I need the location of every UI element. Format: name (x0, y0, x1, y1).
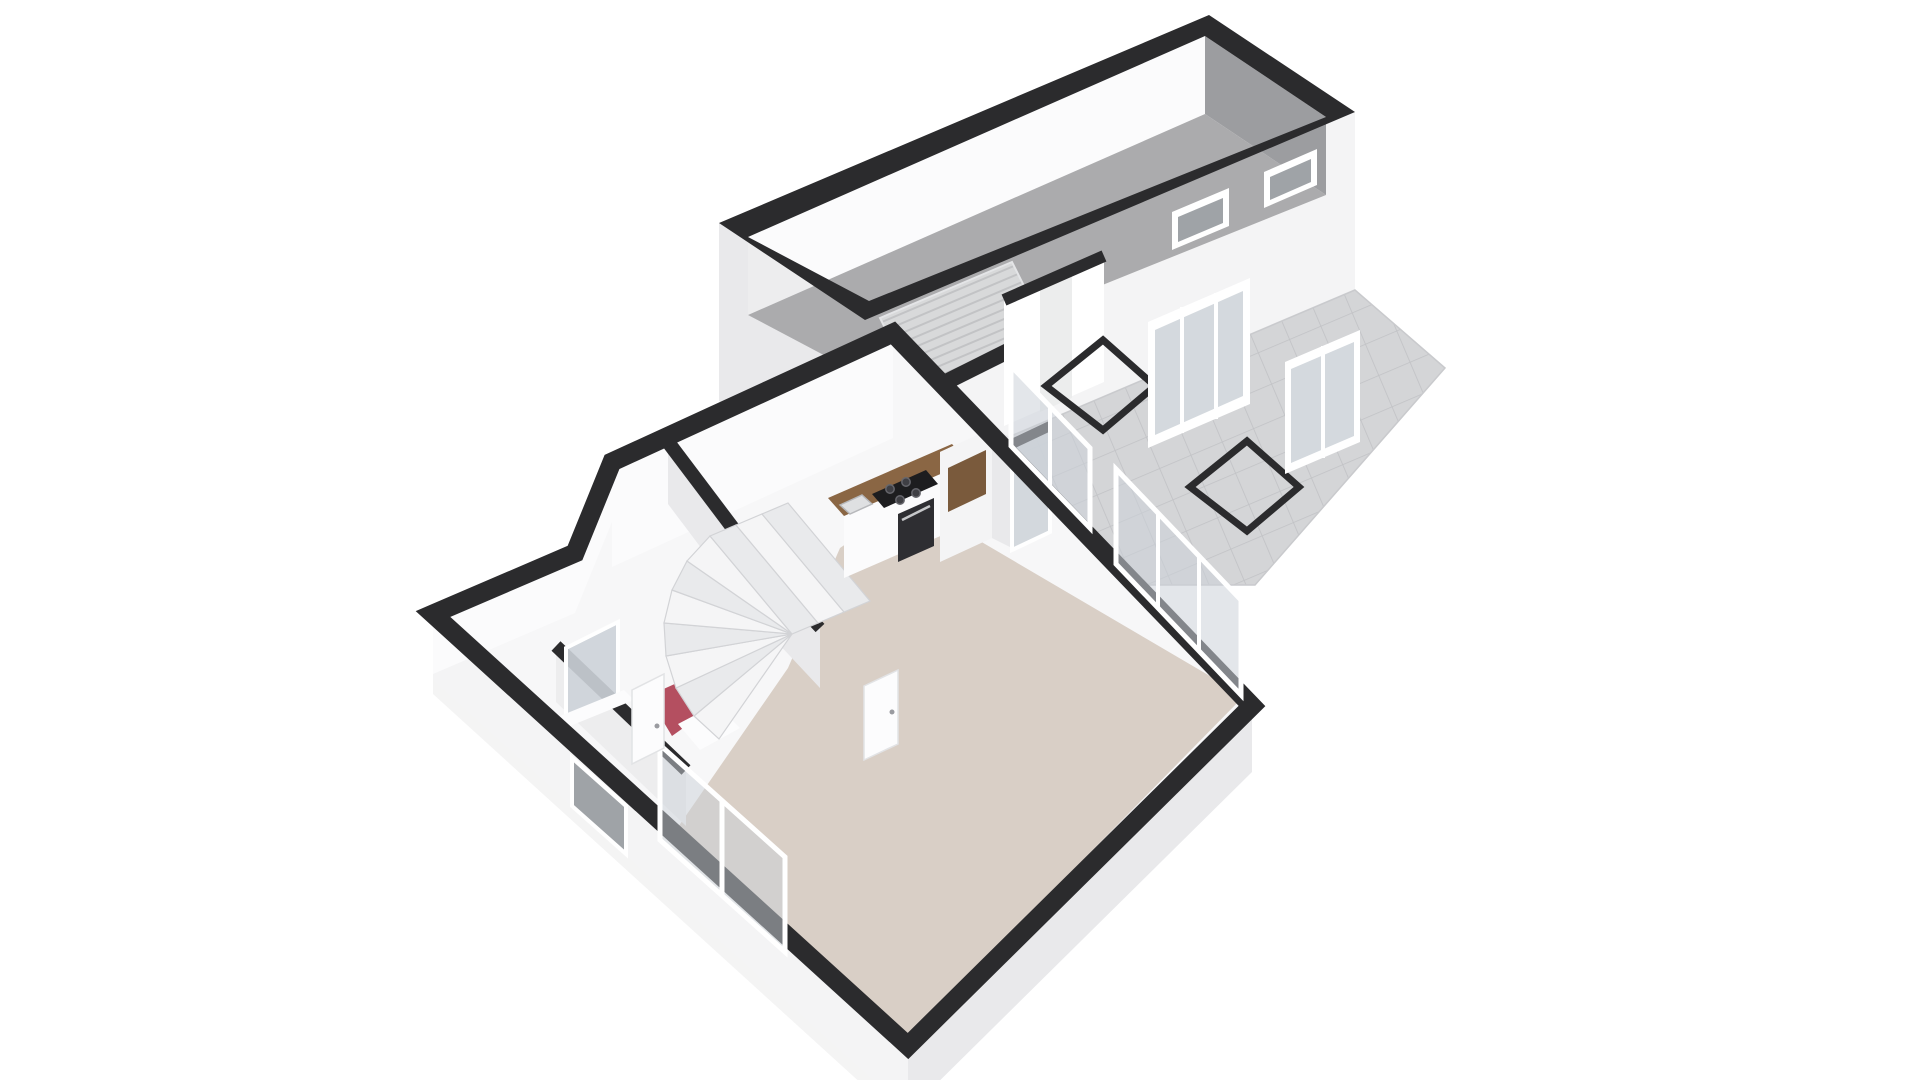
floor-plan-3d-render (0, 0, 1920, 1080)
front-door-leaf (632, 674, 664, 764)
interior-door-handle (890, 710, 895, 715)
front-door (632, 674, 664, 764)
interior-door-leaf (864, 670, 898, 760)
interior-door (864, 670, 898, 760)
front-door-handle (655, 724, 660, 729)
burner (902, 478, 910, 486)
burner (912, 489, 920, 497)
burner (896, 496, 904, 504)
floor-plan-canvas (0, 0, 1920, 1080)
burner (886, 485, 894, 493)
